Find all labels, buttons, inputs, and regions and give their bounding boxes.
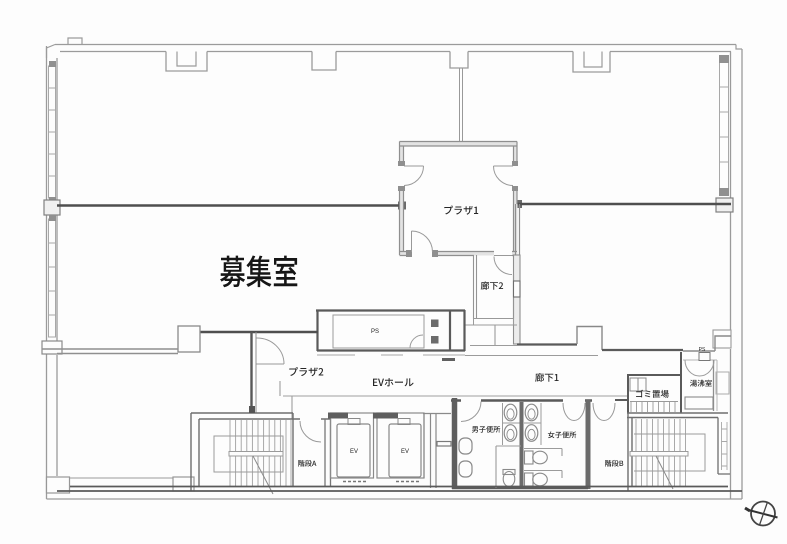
svg-text:PS: PS [371, 329, 379, 335]
svg-text:PS: PS [699, 347, 706, 353]
svg-text:EV: EV [350, 449, 358, 455]
svg-text:EV: EV [401, 449, 409, 455]
